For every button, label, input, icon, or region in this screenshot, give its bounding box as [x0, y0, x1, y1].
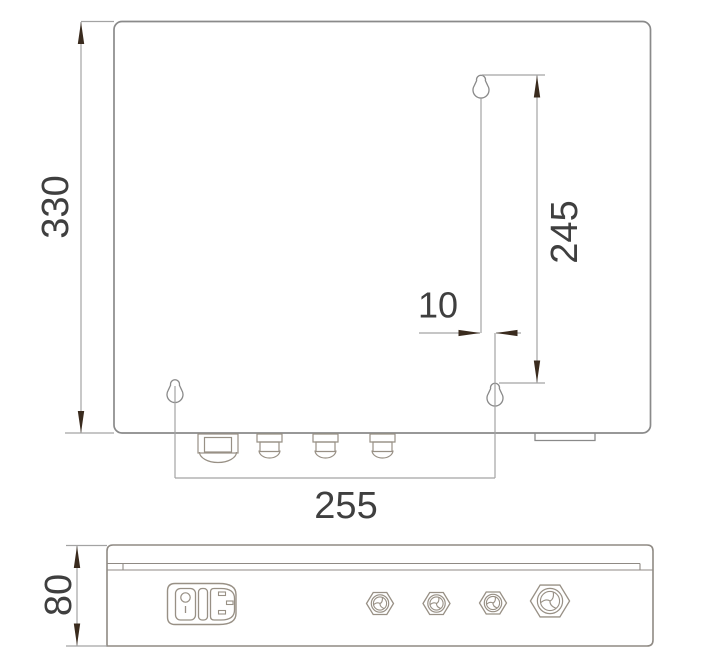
bottom-notch — [535, 433, 595, 441]
cable-gland-side-view-large — [530, 585, 569, 617]
enclosure-outline-side-view — [107, 545, 653, 646]
dimension-label-80: 80 — [38, 574, 80, 616]
inlet-pin-slot — [219, 592, 226, 596]
inlet-pin-slot — [227, 601, 234, 605]
arrow-up-icon — [534, 76, 540, 98]
cable-gland-top-view-2 — [313, 434, 338, 458]
dimension-label-10: 10 — [418, 285, 458, 326]
cable-gland-side-view-2 — [423, 593, 450, 615]
enclosure-dimension-drawing: 330 245 10 255 — [0, 0, 727, 662]
lid-seam — [107, 564, 653, 571]
keyhole-slot-top-right — [473, 75, 489, 98]
dimension-hole-vertical-pitch: 245 — [482, 75, 586, 383]
cable-gland-side-view-1 — [367, 593, 394, 615]
technical-drawing-page: 330 245 10 255 — [0, 0, 727, 662]
cable-gland-top-view-1 — [257, 434, 282, 458]
arrow-up-icon — [74, 546, 80, 568]
fuse-holder — [199, 589, 208, 621]
dimension-label-255: 255 — [314, 485, 377, 527]
dimension-label-330: 330 — [35, 175, 77, 238]
iec-inlet — [211, 589, 235, 621]
arrow-down-icon — [78, 411, 84, 433]
switch-off-symbol-icon — [181, 593, 190, 602]
cable-gland-large-top-view — [198, 434, 238, 463]
dimension-hole-horizontal-pitch: 255 — [175, 386, 495, 527]
arrow-down-icon — [534, 361, 540, 383]
dimension-depth: 80 — [38, 546, 107, 647]
arrow-up-icon — [78, 22, 84, 44]
rocker-switch — [176, 589, 196, 621]
side-view — [107, 545, 653, 646]
arrow-right-icon — [459, 330, 481, 336]
arrow-left-icon — [496, 330, 518, 336]
dimension-label-245: 245 — [544, 200, 586, 263]
dimension-hole-offset: 10 — [418, 99, 521, 479]
inlet-pin-slot — [219, 611, 226, 615]
cable-gland-top-view-3 — [370, 434, 395, 458]
arrow-down-icon — [74, 624, 80, 646]
power-entry-module — [168, 584, 237, 625]
dimension-overall-height: 330 — [35, 22, 114, 434]
cable-gland-side-view-3 — [480, 592, 507, 614]
